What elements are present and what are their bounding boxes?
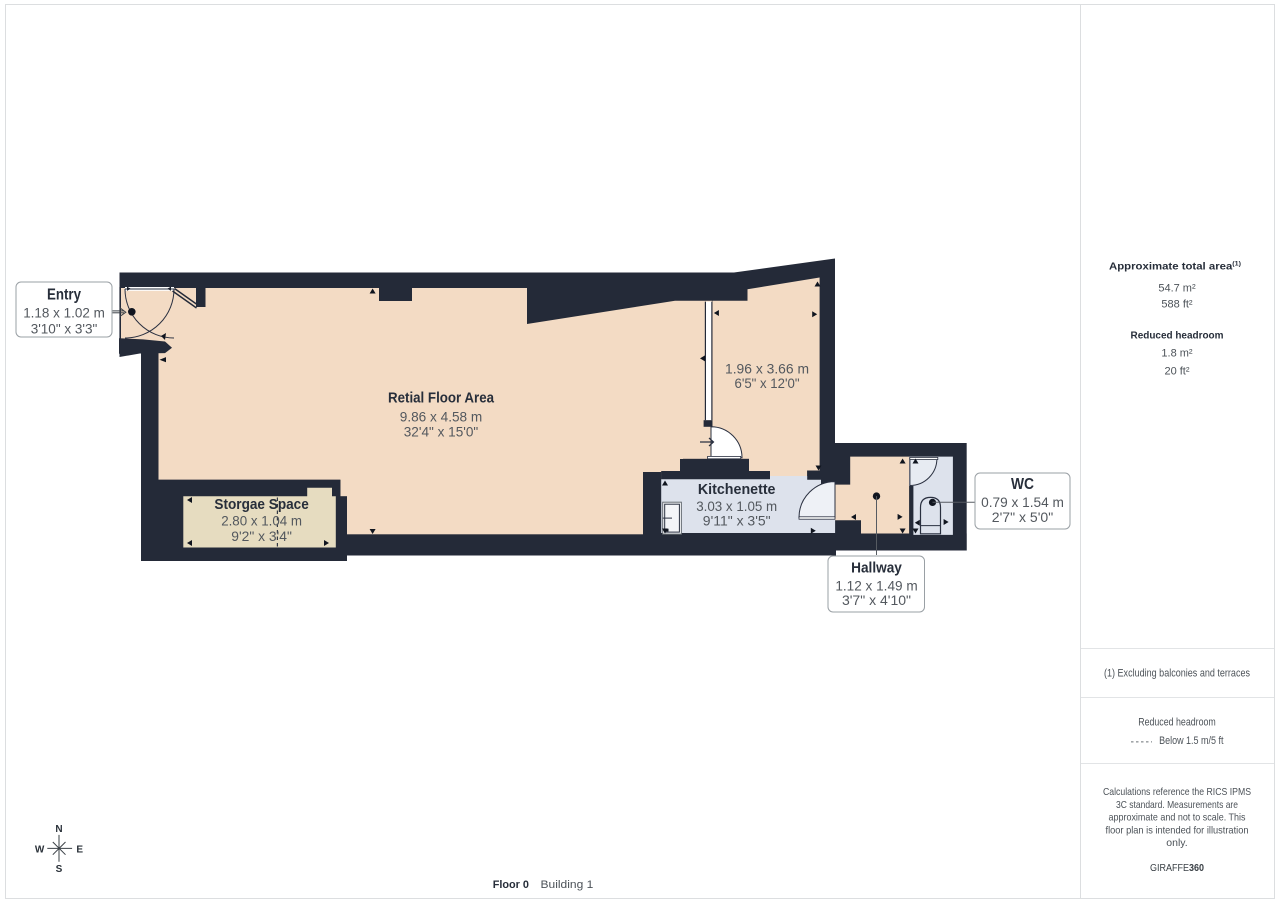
svg-text:floor plan is intended for ill: floor plan is intended for illustration bbox=[1106, 824, 1249, 836]
svg-text:Reduced headroom: Reduced headroom bbox=[1138, 717, 1216, 729]
svg-text:N: N bbox=[55, 824, 62, 835]
svg-text:GIRAFFE360: GIRAFFE360 bbox=[1150, 862, 1204, 874]
svg-text:Storgae Space: Storgae Space bbox=[214, 496, 308, 513]
svg-text:1.18 x 1.02 m: 1.18 x 1.02 m bbox=[23, 304, 105, 320]
svg-text:3C standard. Measurements are: 3C standard. Measurements are bbox=[1116, 799, 1238, 811]
svg-text:2.80 x 1.04 m: 2.80 x 1.04 m bbox=[221, 513, 302, 529]
svg-text:Retial Floor Area: Retial Floor Area bbox=[388, 389, 495, 406]
svg-text:588 ft²: 588 ft² bbox=[1161, 299, 1193, 311]
svg-text:W: W bbox=[35, 844, 45, 855]
svg-text:(1) Excluding balconies and te: (1) Excluding balconies and terraces bbox=[1104, 668, 1250, 680]
svg-text:1.8 m²: 1.8 m² bbox=[1161, 348, 1193, 360]
svg-text:Building 1: Building 1 bbox=[541, 879, 594, 891]
svg-text:Reduced headroom: Reduced headroom bbox=[1131, 331, 1224, 342]
svg-text:9.86 x 4.58 m: 9.86 x 4.58 m bbox=[400, 409, 483, 425]
svg-text:0.79 x 1.54 m: 0.79 x 1.54 m bbox=[981, 494, 1064, 510]
svg-text:S: S bbox=[56, 864, 63, 875]
svg-text:Hallway: Hallway bbox=[851, 559, 902, 576]
svg-text:Approximate total area(1): Approximate total area(1) bbox=[1109, 260, 1241, 272]
svg-text:Entry: Entry bbox=[47, 287, 81, 304]
svg-text:9'11" x 3'5": 9'11" x 3'5" bbox=[703, 513, 771, 529]
svg-text:3'7" x 4'10": 3'7" x 4'10" bbox=[842, 592, 911, 608]
svg-text:54.7 m²: 54.7 m² bbox=[1158, 282, 1196, 294]
svg-text:9'2" x 3'4": 9'2" x 3'4" bbox=[231, 528, 292, 544]
svg-text:Calculations reference the RIC: Calculations reference the RICS IPMS bbox=[1103, 786, 1251, 798]
svg-text:3'10" x 3'3": 3'10" x 3'3" bbox=[31, 321, 98, 337]
svg-text:E: E bbox=[76, 844, 83, 855]
svg-text:6'5" x 12'0": 6'5" x 12'0" bbox=[735, 375, 800, 391]
svg-text:Below 1.5 m/5 ft: Below 1.5 m/5 ft bbox=[1159, 735, 1223, 747]
svg-text:WC: WC bbox=[1011, 476, 1034, 493]
svg-text:Floor 0: Floor 0 bbox=[493, 879, 529, 891]
svg-text:only.: only. bbox=[1166, 837, 1187, 849]
svg-text:20 ft²: 20 ft² bbox=[1164, 366, 1189, 378]
svg-text:2'7" x 5'0": 2'7" x 5'0" bbox=[992, 509, 1053, 525]
svg-text:Kitchenette: Kitchenette bbox=[698, 481, 776, 498]
svg-text:approximate and not to scale.: approximate and not to scale. This bbox=[1109, 812, 1246, 824]
svg-text:3.03 x 1.05 m: 3.03 x 1.05 m bbox=[696, 498, 777, 514]
svg-text:32'4" x 15'0": 32'4" x 15'0" bbox=[404, 423, 479, 439]
